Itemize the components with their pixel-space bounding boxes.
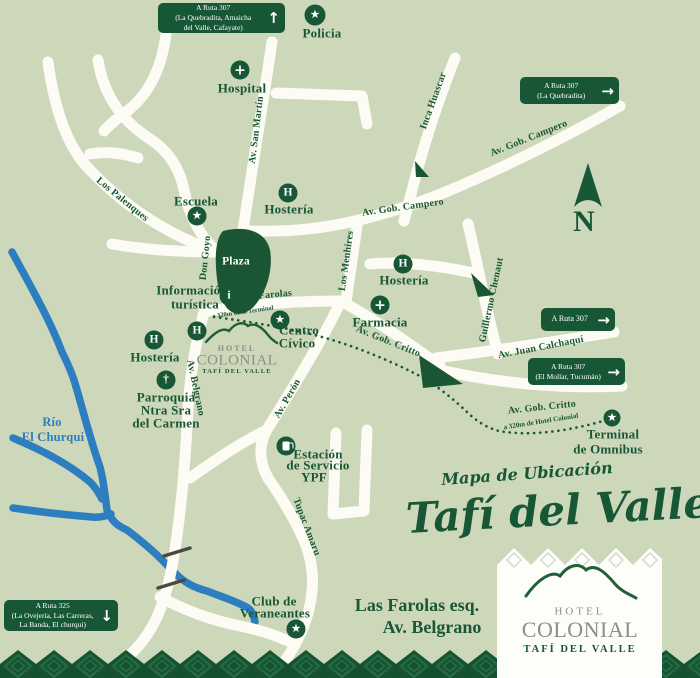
arrow-right-icon: → <box>604 363 625 381</box>
hotel-colonial-marker-icon: H <box>188 322 207 341</box>
hotel-logo-mountain-map <box>206 323 277 343</box>
school-star-icon: ★ <box>188 207 207 226</box>
hosteria-north-icon: H <box>279 184 298 203</box>
police-badge-icon: ★ <box>305 5 326 26</box>
road-northwest-a <box>48 62 90 170</box>
logo-box-tagline: TAFÍ DEL VALLE <box>523 645 636 656</box>
road-northwest-c <box>104 34 166 131</box>
poi-label-hosteria-north: Hostería <box>264 203 313 216</box>
sign-line: A Ruta 307 <box>524 81 598 91</box>
river-label: El Churqui <box>22 431 85 444</box>
arrow-right-icon: → <box>594 311 615 329</box>
poi-label-parroquia: del Carmen <box>132 417 199 430</box>
hotel-address: Av. Belgrano <box>383 618 482 636</box>
sign-line: A Ruta 307 <box>162 3 264 13</box>
church-cross-icon: † <box>157 371 176 390</box>
map-canvas: A Ruta 307 (La Quebradita, Amaicha del V… <box>0 0 700 678</box>
poi-label-policia: Policia <box>303 27 342 40</box>
north-arrow-icon <box>574 163 602 207</box>
logo-box-word-hotel: HOTEL <box>554 607 605 618</box>
poi-label-informacion: turística <box>171 298 219 311</box>
poi-label-farmacia: Farmacia <box>352 316 407 329</box>
road-northwest-connector <box>90 153 138 158</box>
road-ypf-street <box>190 431 265 478</box>
poi-label-ypf: YPF <box>301 471 327 484</box>
sign-line: (La Quebradita) <box>524 91 598 101</box>
plaza-label: Plaza <box>222 256 250 268</box>
route-sign-ruta307-north: A Ruta 307 (La Quebradita, Amaicha del V… <box>158 3 285 33</box>
poi-label-informacion: Información <box>156 284 228 297</box>
sign-line: (El Mollar, Tucumán) <box>532 372 604 382</box>
club-star-icon: ★ <box>287 620 306 639</box>
sign-line: A Ruta 307 <box>532 362 604 372</box>
poi-label-club: Veraneantes <box>240 607 310 620</box>
poi-label-terminal: Terminal <box>587 428 639 441</box>
sign-line: A Ruta 307 <box>545 314 594 324</box>
poi-label-terminal: de Omnibus <box>573 443 643 456</box>
poi-label-hosteria-center: Hostería <box>379 274 428 287</box>
poi-label-hospital: Hospital <box>218 82 267 95</box>
route-sign-ruta307-mollar: A Ruta 307 (El Mollar, Tucumán) → <box>528 358 625 385</box>
road-hospital-side <box>276 93 367 124</box>
arrow-right-icon: → <box>598 82 619 100</box>
route-sign-ruta307-quebradita: A Ruta 307 (La Quebradita) → <box>520 77 619 104</box>
sign-line: La Banda, El churquí) <box>8 620 97 630</box>
arrow-down-icon: ↓ <box>97 607 118 625</box>
route-sign-ruta307-east: A Ruta 307 → <box>541 308 615 331</box>
bus-terminal-star-icon: ★ <box>604 410 621 427</box>
poi-label-centro-civico: Cívico <box>279 337 316 350</box>
hosteria-center-icon: H <box>394 255 413 274</box>
arrow-up-icon: ↑ <box>264 9 285 27</box>
sign-line: (La Quebradita, Amaicha <box>162 13 264 23</box>
logo-box-word-colonial: COLONIAL <box>522 619 638 641</box>
poi-label-hosteria-west: Hostería <box>130 351 179 364</box>
route-sign-ruta325-south: A Ruta 325 (La Ovejería, Las Carreras, L… <box>4 600 118 631</box>
hotel-address: Las Farolas esq. <box>355 596 479 614</box>
tourist-info-icon: i <box>220 287 239 306</box>
pharmacy-cross-icon: + <box>371 296 390 315</box>
north-label: N <box>573 207 595 237</box>
sign-line: A Ruta 325 <box>8 601 97 611</box>
river-label: Río <box>42 416 61 429</box>
sign-line: (La Ovejería, Las Carreras, <box>8 611 97 621</box>
hosteria-west-icon: H <box>145 331 164 350</box>
hotel-logo-word-colonial: COLONIAL <box>197 354 278 369</box>
hotel-logo-tagline: TAFÍ DEL VALLE <box>202 369 272 376</box>
hospital-cross-icon: + <box>231 61 250 80</box>
sign-line: del Valle, Cafayate) <box>162 23 264 33</box>
fuel-pump-glyph <box>283 442 290 451</box>
